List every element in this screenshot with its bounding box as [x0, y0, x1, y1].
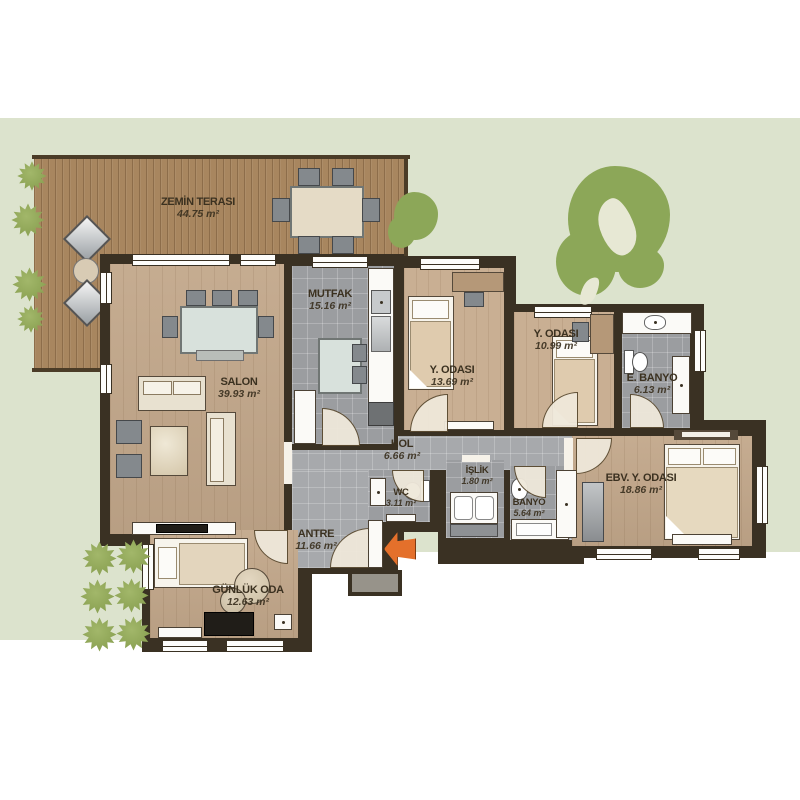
- terrace-chair: [362, 198, 380, 222]
- kitchen-appliance: [368, 402, 394, 426]
- dining-chair: [186, 290, 206, 306]
- radiator: [386, 514, 416, 522]
- radiator: [158, 627, 202, 638]
- armchair: [116, 420, 142, 444]
- terrace-edge-bottom: [32, 368, 110, 372]
- room-label-gunluk-oda: GÜNLÜK ODA12.63 m²: [212, 584, 284, 608]
- room-label-ebv-y-odasi: EBV. Y. ODASI18.86 m²: [606, 472, 677, 496]
- window: [100, 272, 112, 304]
- window: [420, 258, 480, 270]
- stove: [371, 316, 391, 352]
- room-label-antre: ANTRE11.66 m²: [295, 528, 336, 552]
- speaker: [274, 614, 292, 630]
- opening-salon-hol: [284, 442, 292, 484]
- sink: [370, 478, 386, 506]
- room-label-hol: HOL6.66 m²: [384, 438, 420, 462]
- terrace-chair: [332, 168, 354, 186]
- tv: [204, 612, 254, 636]
- kitchen-chair: [352, 344, 367, 362]
- dresser: [674, 430, 738, 440]
- dining-chair: [258, 316, 274, 338]
- window: [756, 466, 768, 524]
- desk: [452, 272, 504, 292]
- window: [698, 548, 740, 560]
- wardrobe: [582, 482, 604, 542]
- room-label-banyo: BANYO5.64 m²: [513, 498, 546, 518]
- floor-plan: ZEMİN TERASI44.75 m² SALON39.93 m² MUTFA…: [0, 0, 800, 800]
- sofa: [206, 412, 236, 486]
- desk: [590, 314, 614, 354]
- islik-counter: [450, 524, 498, 537]
- dining-table: [180, 306, 258, 354]
- kitchen-cabinet: [294, 390, 316, 444]
- radiator: [444, 421, 494, 430]
- room-label-e-banyo: E. BANYO6.13 m²: [627, 372, 678, 396]
- room-label-mutfak: MUTFAK15.16 m²: [308, 288, 352, 312]
- room-label-wc: WC3.11 m²: [386, 488, 416, 508]
- washing-machine: [450, 492, 498, 524]
- dining-chair: [212, 290, 232, 306]
- bed-bench: [672, 534, 732, 545]
- terrace-chair: [272, 198, 290, 222]
- dining-chair: [238, 290, 258, 306]
- sofa: [138, 376, 206, 411]
- room-label-islik: İŞLİK1.80 m²: [461, 466, 492, 486]
- window: [132, 254, 230, 266]
- toilet: [632, 352, 648, 372]
- terrace-chair: [298, 168, 320, 186]
- window: [534, 306, 592, 318]
- entry-door: [368, 520, 383, 568]
- room-label-zemin-terasi: ZEMİN TERASI44.75 m²: [161, 196, 235, 220]
- sink: [644, 315, 666, 330]
- folding-door: [462, 455, 490, 462]
- entry-step: [352, 574, 398, 592]
- terrace-chair: [332, 236, 354, 254]
- room-label-y-odasi-2: Y. ODASI10.99 m²: [534, 328, 579, 352]
- opening-ebv: [564, 438, 573, 470]
- window: [694, 330, 706, 372]
- tall-cabinet: [556, 470, 577, 538]
- kitchen-chair: [352, 366, 367, 384]
- window: [226, 640, 284, 652]
- room-label-salon: SALON39.93 m²: [218, 376, 260, 400]
- coffee-table: [150, 426, 188, 476]
- desk-chair: [464, 292, 484, 307]
- kitchen-sink: [371, 290, 391, 314]
- window: [312, 256, 368, 268]
- armchair: [116, 454, 142, 478]
- tv: [156, 524, 208, 533]
- window: [596, 548, 652, 560]
- window: [240, 254, 276, 266]
- dining-bench: [196, 350, 244, 361]
- room-label-y-odasi-1: Y. ODASI13.69 m²: [430, 364, 475, 388]
- window: [100, 364, 112, 394]
- window: [162, 640, 208, 652]
- terrace-edge-top: [32, 155, 410, 159]
- terrace-table: [290, 186, 364, 238]
- dining-chair: [162, 316, 178, 338]
- terrace-chair: [298, 236, 320, 254]
